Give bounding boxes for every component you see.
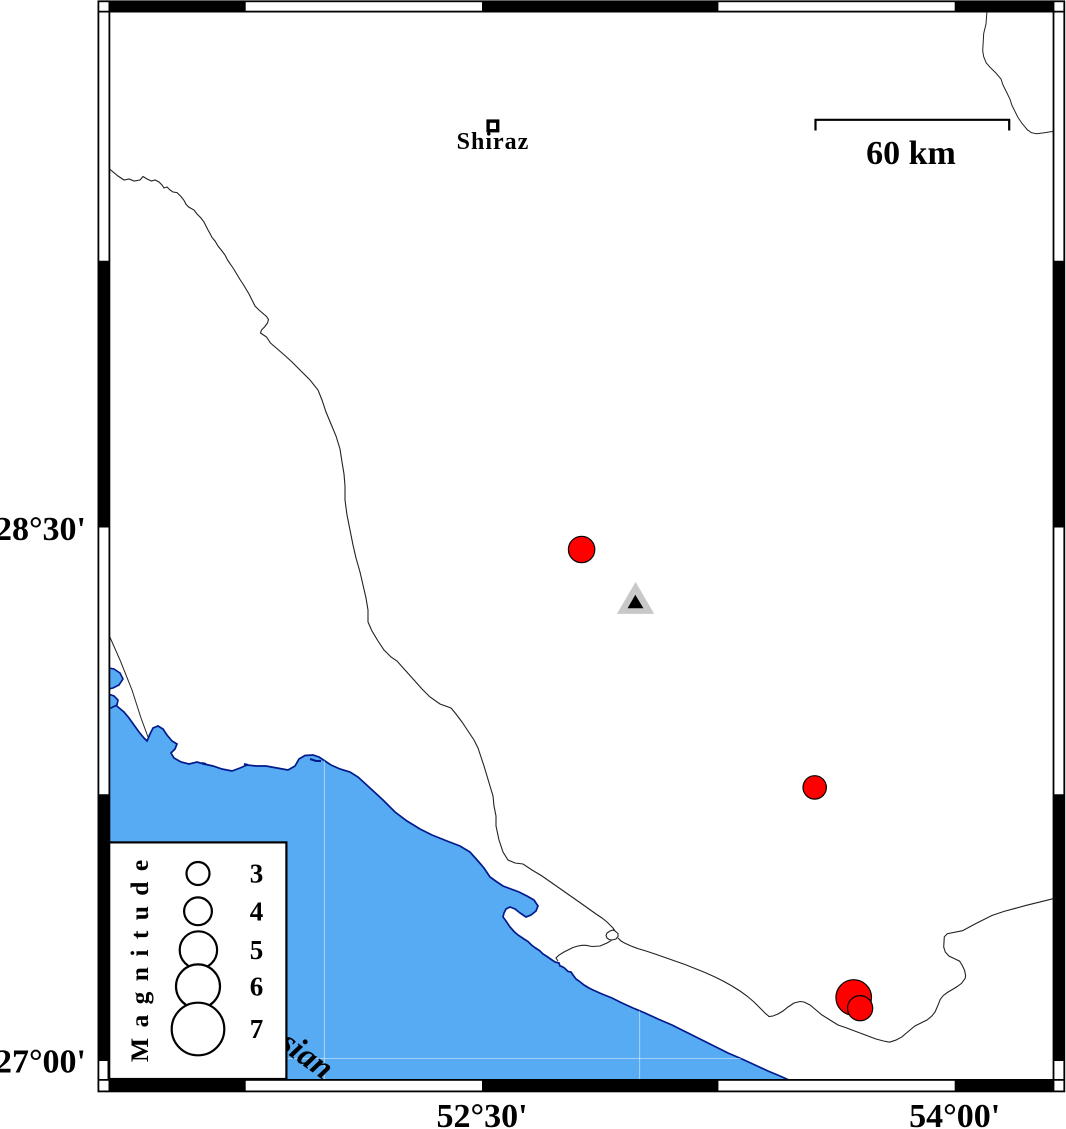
svg-text:4: 4	[250, 896, 264, 926]
svg-text:5: 5	[250, 935, 264, 965]
svg-text:28°30': 28°30'	[0, 511, 86, 548]
svg-text:Shiraz: Shiraz	[457, 129, 530, 155]
svg-text:54°00': 54°00'	[909, 1098, 1000, 1129]
svg-text:7: 7	[250, 1014, 264, 1044]
svg-text:52°30': 52°30'	[436, 1098, 527, 1129]
svg-text:Magnitude: Magnitude	[125, 849, 154, 1062]
svg-text:27°00': 27°00'	[0, 1044, 86, 1081]
svg-text:3: 3	[250, 859, 264, 889]
svg-text:6: 6	[250, 971, 264, 1001]
svg-text:60 km: 60 km	[866, 135, 956, 172]
